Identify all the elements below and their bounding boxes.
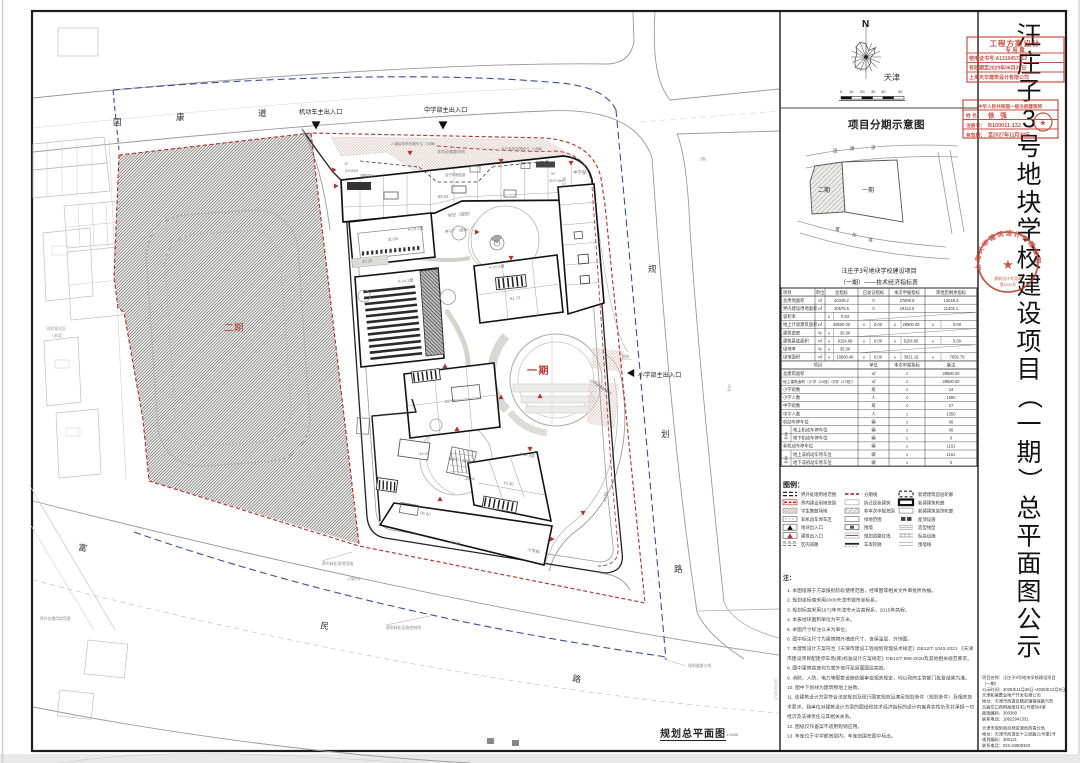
- svg-text:总用地面积: 总用地面积: [783, 297, 805, 304]
- svg-text:30.00: 30.00: [840, 330, 851, 335]
- svg-text:0.00: 0.00: [874, 322, 883, 327]
- svg-text:28500.00: 28500.00: [902, 322, 920, 327]
- svg-text:9. 消防、人防、电力等配套设施依据审批相关规定，均以政府主: 9. 消防、人防、电力等配套设施依据审批相关规定，均以政府主管部门批复结果为准。: [787, 674, 970, 681]
- svg-text:㎡: ㎡: [818, 305, 823, 311]
- svg-text:辆: 辆: [871, 435, 876, 442]
- svg-text:第0231号: 第0231号: [1000, 282, 1016, 287]
- svg-text:市建设项目配建停车场(库)标准设计方案规定》DB12/T 9: 市建设项目配建停车场(库)标准设计方案规定》DB12/T 998-2020及其他…: [787, 655, 972, 662]
- svg-text:6. 图中标注尺寸为建筑物外墙皮尺寸，含保温层、外饰面。: 6. 图中标注尺寸为建筑物外墙皮尺寸，含保温层、外饰面。: [787, 636, 912, 643]
- svg-text:19113.5: 19113.5: [900, 306, 915, 311]
- svg-text:自行车棚连廊: 自行车棚连廊: [445, 172, 466, 177]
- svg-text:㎡: ㎡: [818, 297, 823, 303]
- svg-text:绿地面积: 绿地面积: [783, 354, 801, 361]
- svg-text:平: 平: [1016, 522, 1041, 550]
- svg-text:建筑出入口: 建筑出入口: [801, 533, 823, 540]
- svg-text:0.00: 0.00: [874, 355, 883, 360]
- svg-text:㎡: ㎡: [871, 370, 876, 376]
- svg-text:单位: 单位: [869, 362, 878, 369]
- svg-text:上海天华建筑设计有限公司: 上海天华建筑设计有限公司: [969, 74, 1029, 81]
- svg-text:徐 强: 徐 强: [987, 111, 1009, 120]
- svg-text:建筑密度: 建筑密度: [783, 329, 801, 336]
- svg-text:7-钢结构停车棚车位（36辆）: 7-钢结构停车棚车位（36辆）: [391, 141, 438, 146]
- svg-text:辆: 辆: [871, 459, 876, 466]
- svg-text:地上计容建筑面积: 地上计容建筑面积: [783, 321, 818, 328]
- svg-text:中学部主出入口: 中学部主出入口: [424, 106, 467, 114]
- svg-text:地块出入口: 地块出入口: [801, 524, 823, 531]
- svg-text:68: 68: [949, 428, 954, 433]
- svg-text:规划总平面图: 规划总平面图: [660, 727, 726, 740]
- svg-text:30: 30: [871, 89, 876, 94]
- svg-text:4. 本表地块面积单位为平方米。: 4. 本表地块面积单位为平方米。: [787, 616, 855, 623]
- svg-text:道: 道: [258, 108, 267, 118]
- svg-text:小学部主出入口: 小学部主出入口: [638, 371, 681, 379]
- svg-text:一期: 一期: [527, 364, 550, 377]
- svg-text:界内建设用地范围: 界内建设用地范围: [801, 499, 837, 506]
- svg-text:联系电话：022-24808329: 联系电话：022-24808329: [982, 742, 1031, 749]
- svg-text:27899.9: 27899.9: [900, 298, 916, 303]
- svg-text:地: 地: [1016, 161, 1041, 189]
- svg-text:备注: 备注: [947, 362, 956, 369]
- svg-text:道: 道: [871, 144, 876, 151]
- svg-text:围墙: 围墙: [864, 524, 873, 531]
- svg-text:学生集散场地: 学生集散场地: [801, 508, 828, 515]
- svg-text:50: 50: [898, 89, 903, 94]
- svg-text:10. 图中下划线为建筑物地上层数。: 10. 图中下划线为建筑物地上层数。: [787, 684, 862, 691]
- svg-text:新建建筑首层轮廓: 新建建筑首层轮廓: [918, 491, 954, 498]
- svg-text:5F: 5F: [551, 172, 555, 176]
- svg-text:机动车停车位: 机动车停车位: [783, 418, 809, 425]
- svg-text:二期: 二期: [224, 323, 244, 334]
- svg-text:★: ★: [1039, 119, 1046, 128]
- svg-text:28500.00: 28500.00: [833, 322, 851, 327]
- svg-text:2. 规划坐标值采用2000天津市城市坐标系。: 2. 规划坐标值采用2000天津市城市坐标系。: [787, 597, 880, 604]
- svg-text:7659.70: 7659.70: [950, 355, 966, 360]
- svg-text:图: 图: [1016, 578, 1041, 606]
- svg-text:界内绿化用地范围: 界内绿化用地范围: [322, 561, 353, 566]
- svg-text:0.00: 0.00: [953, 338, 962, 343]
- svg-text:35.00: 35.00: [840, 347, 851, 352]
- svg-text:㎡: ㎡: [818, 354, 823, 360]
- svg-text:1350: 1350: [946, 411, 956, 416]
- svg-text:一: 一: [1016, 411, 1041, 439]
- svg-text:本次申报指标: 本次申报指标: [894, 289, 920, 296]
- svg-text:(路): (路): [700, 156, 707, 161]
- svg-text:★: ★: [1002, 257, 1014, 272]
- svg-text:非本次申报范围: 非本次申报范围: [864, 508, 895, 515]
- svg-text:中华人民共和国一级注册建筑师: 中华人民共和国一级注册建筑师: [978, 103, 1043, 110]
- svg-text:（多层）: （多层）: [50, 333, 65, 338]
- svg-text:分期线: 分期线: [864, 491, 878, 498]
- svg-text:有效期至2029年06月30日: 有效期至2029年06月30日: [969, 65, 1026, 72]
- svg-text:富: 富: [78, 542, 88, 553]
- svg-text:界内建设用地面积: 界内建设用地面积: [783, 305, 818, 312]
- svg-text:总建筑面积: 总建筑面积: [783, 370, 805, 377]
- svg-text:新建建筑装饰轮廓: 新建建筑装饰轮廓: [918, 508, 954, 515]
- svg-text:规划道路红线: 规划道路红线: [864, 533, 891, 540]
- svg-text:-46.35: -46.35: [464, 477, 475, 481]
- svg-text:界外处理用地范围: 界外处理用地范围: [801, 491, 837, 498]
- svg-text:绿地范围: 绿地范围: [864, 516, 882, 523]
- svg-text:注：: 注：: [783, 574, 795, 582]
- svg-text:32.70: 32.70: [510, 295, 522, 301]
- svg-text:项目分期示意图: 项目分期示意图: [848, 118, 925, 131]
- svg-text:绿地率: 绿地率: [783, 346, 797, 353]
- svg-text:㎡: ㎡: [818, 337, 823, 343]
- svg-text:规划道路七线: 规划道路七线: [688, 663, 711, 668]
- svg-text:姓 名：: 姓 名：: [966, 112, 982, 119]
- svg-text:初设阶段出图: 初设阶段出图: [773, 679, 778, 700]
- svg-text:车库轮廓: 车库轮廓: [864, 541, 882, 548]
- svg-text:非机动车停车位: 非机动车停车位: [783, 443, 814, 450]
- svg-text:造型线型: 造型线型: [918, 524, 936, 531]
- svg-text:-48.35: -48.35: [418, 452, 429, 456]
- svg-text:0.00: 0.00: [953, 322, 962, 327]
- svg-text:辆: 辆: [871, 427, 876, 434]
- svg-text:中学部: 中学部: [573, 169, 587, 176]
- svg-text:康: 康: [850, 145, 855, 151]
- svg-text:注册号：: 注册号：: [966, 122, 985, 129]
- svg-text:13. 车库位于中学部首层内，车库范围在图中标出。: 13. 车库位于中学部首层内，车库范围在图中标出。: [787, 733, 896, 740]
- svg-text:示: 示: [1016, 634, 1041, 662]
- svg-text:新建建筑轮廓: 新建建筑轮廓: [918, 499, 945, 506]
- svg-text:区内道路: 区内道路: [801, 541, 819, 548]
- svg-text:界外处理用地范围: 界外处理用地范围: [40, 616, 71, 621]
- svg-text:㎡: ㎡: [871, 378, 876, 384]
- svg-text:1080: 1080: [946, 395, 956, 400]
- svg-text:公: 公: [1016, 606, 1041, 634]
- svg-text:中22.45M: 中22.45M: [549, 178, 564, 183]
- svg-text:13048.3: 13048.3: [944, 298, 960, 303]
- svg-text:3. 规划标高采用1972年天津市大沽高程系，2015年高程: 3. 规划标高采用1972年天津市大沽高程系，2015年高程。: [787, 606, 910, 613]
- svg-text:目: 目: [1016, 356, 1041, 384]
- svg-text:面: 面: [1016, 550, 1041, 578]
- svg-text:国: 国: [113, 117, 122, 127]
- svg-text:辆: 辆: [871, 443, 876, 450]
- svg-text:B100011-132: B100011-132: [988, 123, 1021, 129]
- svg-text:地上建筑面积（小学（24班）中学（27班））: 地上建筑面积（小学（24班）中学（27班））: [783, 379, 856, 384]
- svg-text:拆迁现状建筑: 拆迁现状建筑: [864, 499, 891, 506]
- svg-text:40: 40: [881, 89, 886, 94]
- svg-text:1:1000: 1:1000: [726, 732, 739, 737]
- svg-text:地上机动车停车位: 地上机动车停车位: [793, 427, 828, 434]
- svg-text:二期: 二期: [818, 186, 830, 194]
- svg-text:术要求，我单位对建筑设计方案的图纸和技术经济指标的设计内容真: 术要求，我单位对建筑设计方案的图纸和技术经济指标的设计内容真实性负责并承担一切: [787, 703, 974, 710]
- svg-text:12. 图纸仅作备案不适用购销应用。: 12. 图纸仅作备案不适用购销应用。: [787, 723, 862, 730]
- svg-text:27: 27: [949, 403, 954, 408]
- svg-text:20: 20: [860, 89, 865, 94]
- svg-text:中学人数: 中学人数: [783, 410, 801, 417]
- svg-text:一期: 一期: [862, 186, 874, 194]
- svg-text:㎡: ㎡: [818, 321, 823, 327]
- svg-text:30575.6: 30575.6: [834, 306, 850, 311]
- svg-text:（: （: [1015, 384, 1043, 409]
- svg-text:块: 块: [1016, 189, 1041, 217]
- svg-text:3021.16: 3021.16: [904, 355, 920, 360]
- svg-text:本次申报指标: 本次申报指标: [894, 362, 920, 369]
- svg-text:小学班数: 小学班数: [783, 386, 801, 393]
- svg-text:容积率: 容积率: [783, 313, 797, 320]
- svg-text:屋顶设施: 屋顶设施: [918, 516, 936, 523]
- svg-text:小学人数: 小学人数: [783, 394, 801, 401]
- svg-text:8. 图中建筑高度均为室外地坪至屋面面层高度。: 8. 图中建筑高度均为室外地坪至屋面面层高度。: [787, 665, 888, 672]
- svg-text:总指标: 总指标: [835, 289, 849, 296]
- svg-text:图例：: 图例：: [783, 480, 804, 489]
- svg-text:9154.68: 9154.68: [904, 338, 920, 343]
- svg-text:规: 规: [648, 264, 657, 274]
- svg-text:1. 本图纸限于方案报批阶段使用范围，经审图等相关文件审批所: 1. 本图纸限于方案报批阶段使用范围，经审图等相关文件审批所依据。: [787, 587, 936, 594]
- svg-text:66.04: 66.04: [438, 194, 449, 199]
- svg-text:康: 康: [176, 112, 185, 122]
- svg-text:总: 总: [1016, 495, 1041, 523]
- svg-text:40348.2: 40348.2: [834, 298, 850, 303]
- svg-text:汪庄子3号地块学校建设项目: 汪庄子3号地块学校建设项目: [841, 267, 916, 275]
- svg-text:人: 人: [871, 411, 876, 416]
- svg-text:民: 民: [320, 620, 330, 631]
- svg-text:7. 本建筑设计方案符合《天津市建设工程规划管理技术规定》D: 7. 本建筑设计方案符合《天津市建设工程规划管理技术规定》DB12/T 1040…: [787, 645, 973, 652]
- svg-text:中学班数: 中学班数: [783, 402, 801, 409]
- svg-text:班: 班: [871, 402, 876, 409]
- svg-text:期: 期: [1016, 439, 1041, 467]
- svg-text:0.00: 0.00: [874, 338, 883, 343]
- svg-text:规划绿化设施控制线: 规划绿化设施控制线: [386, 625, 421, 630]
- svg-text:路: 路: [674, 564, 683, 574]
- svg-text:24: 24: [949, 387, 954, 392]
- svg-text:辆: 辆: [871, 451, 876, 458]
- svg-text:%: %: [818, 330, 822, 335]
- svg-text:设: 设: [1016, 300, 1041, 328]
- svg-text:11402.1: 11402.1: [944, 306, 959, 311]
- svg-text:%: %: [818, 347, 822, 352]
- svg-text:28500.00: 28500.00: [942, 379, 960, 384]
- svg-text:中5.85M: 中5.85M: [345, 168, 358, 173]
- svg-text:28500.00: 28500.00: [942, 371, 960, 376]
- svg-text:使用证书号:A1310457212: 使用证书号:A1310457212: [968, 55, 1027, 62]
- svg-text:非机动车停车区: 非机动车停车区: [801, 516, 832, 523]
- svg-text:10680.46: 10680.46: [836, 355, 854, 360]
- svg-text:标高设施: 标高设施: [918, 533, 936, 540]
- svg-text:）: ）: [1015, 467, 1043, 492]
- svg-text:自行车停车棚车位（24辆）: 自行车停车棚车位（24辆）: [501, 146, 545, 151]
- svg-text:辆: 辆: [871, 418, 876, 425]
- svg-text:现状居住区: 现状居住区: [47, 326, 66, 331]
- svg-text:天津: 天津: [884, 72, 900, 82]
- svg-text:工程方案设计: 工程方案设计: [990, 38, 1041, 48]
- svg-text:审批后剩余指标: 审批后剩余指标: [936, 289, 967, 296]
- svg-text:1161: 1161: [947, 452, 957, 457]
- svg-text:机动车主出入口: 机动车主出入口: [299, 108, 342, 116]
- svg-text:68: 68: [949, 419, 954, 424]
- svg-text:地上非机动车停车位: 地上非机动车停车位: [793, 451, 832, 458]
- svg-text:人: 人: [871, 395, 876, 400]
- svg-text:项: 项: [1016, 328, 1041, 356]
- svg-text:建筑基底面积: 建筑基底面积: [783, 337, 809, 344]
- svg-text:联系电话：18622941331: 联系电话：18622941331: [982, 715, 1029, 722]
- svg-text:专 用 章: 专 用 章: [1005, 46, 1025, 54]
- svg-text:非机动集散场地: 非机动集散场地: [437, 148, 465, 154]
- svg-text:班: 班: [871, 386, 876, 393]
- svg-text:10: 10: [849, 89, 854, 94]
- svg-text:0.93: 0.93: [841, 314, 850, 319]
- svg-text:N: N: [862, 19, 869, 30]
- svg-text:至2027年11月30日: 至2027年11月30日: [988, 132, 1030, 139]
- svg-text:有效期：: 有效期：: [966, 132, 985, 139]
- svg-text:经济及法律责任与其相关关系。: 经济及法律责任与其相关关系。: [787, 713, 854, 720]
- svg-text:围墙线: 围墙线: [918, 541, 932, 548]
- svg-text:1F: 1F: [344, 162, 349, 166]
- svg-text:调整绿地: 调整绿地: [360, 173, 374, 178]
- svg-text:中: 中: [784, 460, 788, 465]
- svg-text:1161: 1161: [947, 444, 957, 449]
- svg-text:厕所: 厕所: [622, 354, 630, 359]
- svg-text:地下机动车停车位: 地下机动车停车位: [793, 435, 828, 442]
- svg-text:单位: 单位: [816, 289, 825, 296]
- svg-text:建筑设计专用章: 建筑设计专用章: [994, 275, 1022, 281]
- svg-text:（一期）——技术经济指标表: （一期）——技术经济指标表: [840, 279, 918, 287]
- svg-text:5. 本图尺寸标注以米为单位。: 5. 本图尺寸标注以米为单位。: [787, 626, 850, 633]
- svg-text:划: 划: [661, 429, 670, 439]
- svg-text:11. 该建筑设计方案符合法定规划及现行国家规范且满足规划条: 11. 该建筑设计方案符合法定规划及现行国家规范且满足规划条件（规划条件）及相关…: [787, 694, 972, 701]
- svg-text:地下非机动车停车位: 地下非机动车停车位: [793, 459, 832, 466]
- svg-text:已发证指标: 已发证指标: [863, 289, 885, 296]
- svg-text:中: 中: [784, 435, 788, 440]
- svg-text:公建停车: 公建停车: [347, 576, 361, 581]
- svg-text:9154.68: 9154.68: [838, 338, 854, 343]
